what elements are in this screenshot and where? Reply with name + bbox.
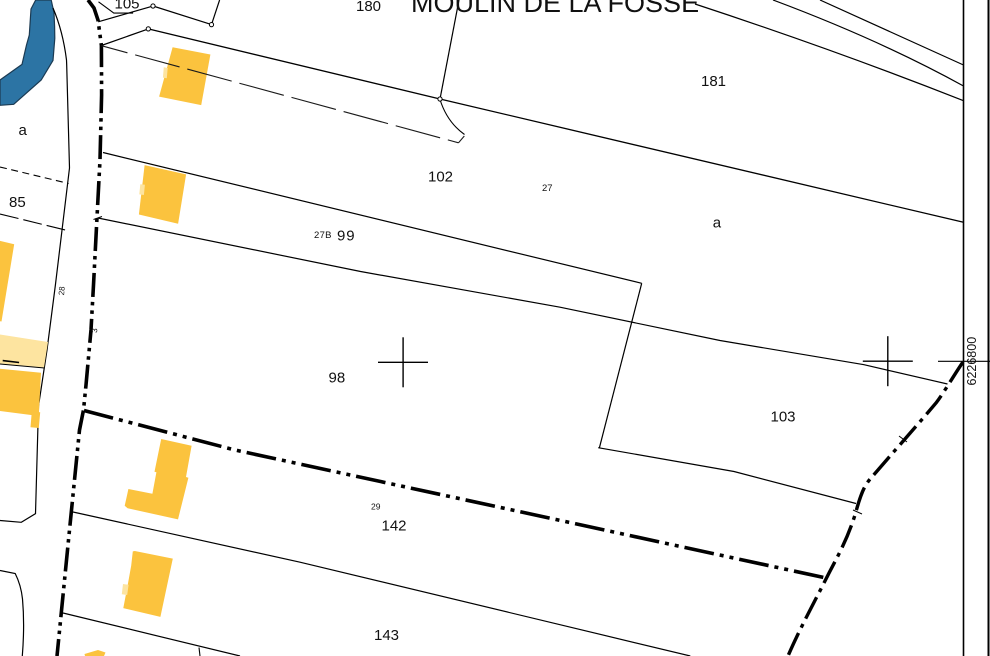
svg-text:27: 27 bbox=[542, 183, 553, 194]
svg-text:143: 143 bbox=[374, 627, 399, 644]
svg-text:181: 181 bbox=[701, 73, 726, 90]
svg-text:85: 85 bbox=[9, 194, 26, 211]
svg-text:27B: 27B bbox=[314, 230, 332, 241]
svg-text:103: 103 bbox=[771, 409, 796, 426]
svg-text:MOULIN DE LA FOSSE: MOULIN DE LA FOSSE bbox=[411, 0, 699, 18]
svg-text:180: 180 bbox=[356, 0, 381, 15]
svg-text:a: a bbox=[713, 214, 722, 231]
svg-text:28: 28 bbox=[57, 285, 67, 295]
svg-text:29: 29 bbox=[371, 502, 381, 512]
svg-text:6226800: 6226800 bbox=[965, 337, 979, 386]
svg-text:98: 98 bbox=[329, 370, 346, 387]
svg-text:99: 99 bbox=[337, 228, 356, 245]
svg-text:a: a bbox=[19, 122, 28, 139]
svg-text:142: 142 bbox=[382, 518, 407, 535]
svg-text:102: 102 bbox=[428, 169, 453, 186]
svg-text:105: 105 bbox=[115, 0, 140, 12]
